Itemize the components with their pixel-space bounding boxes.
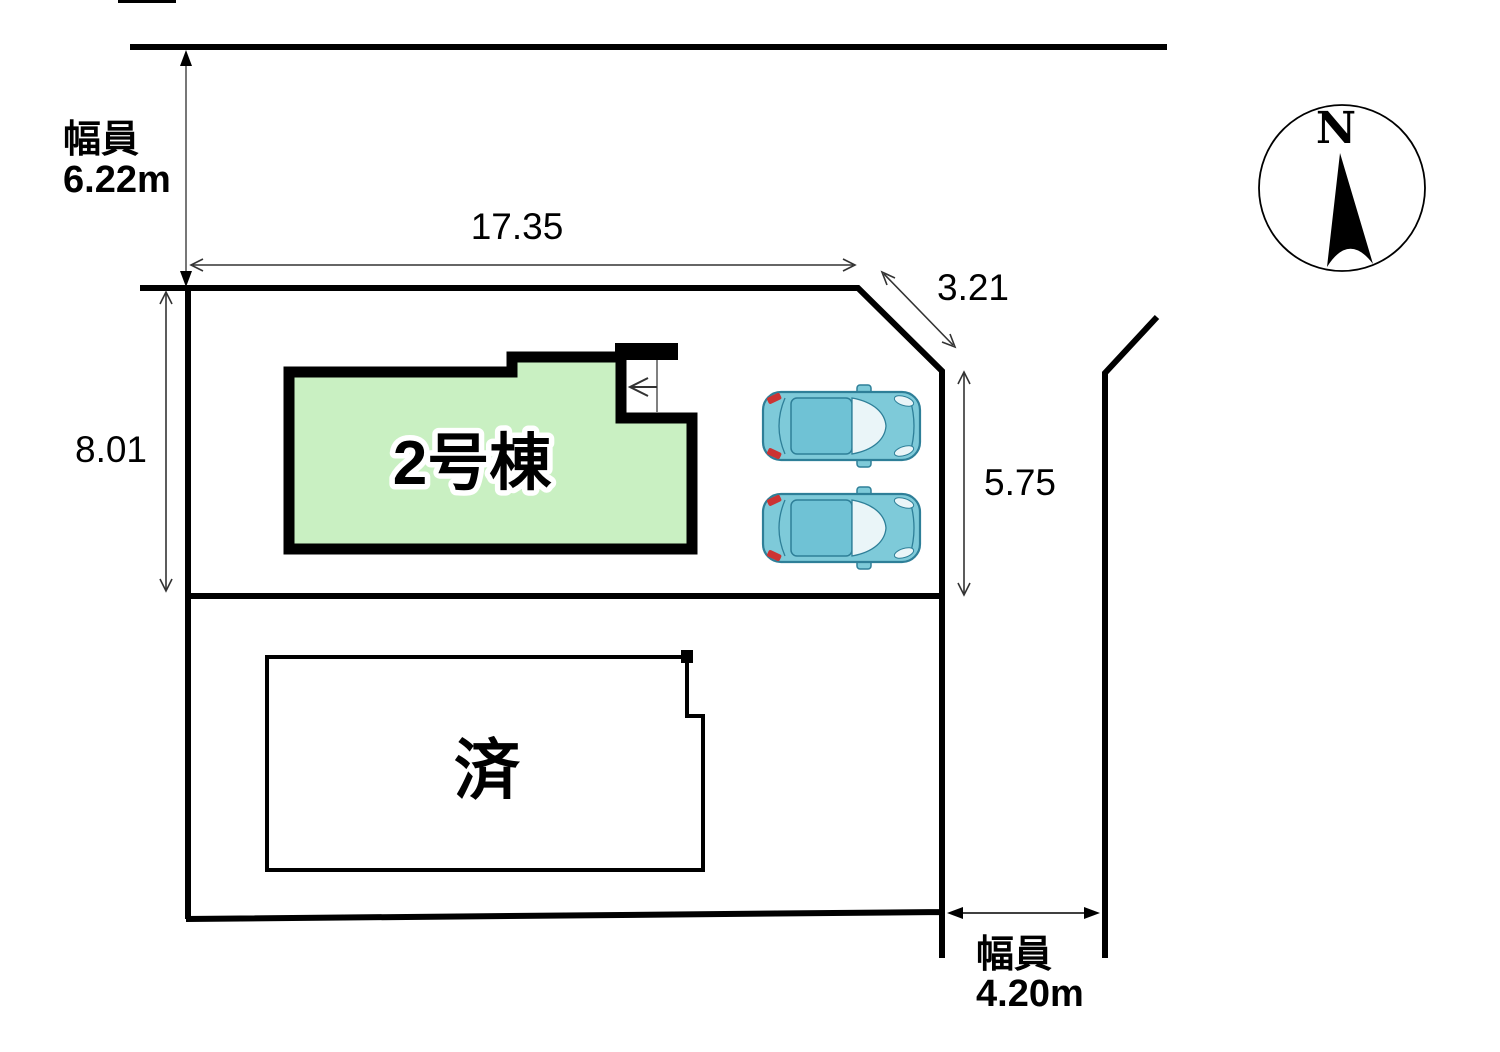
building-sold: 済 <box>267 650 703 870</box>
road-right-width-label-line1: 幅員 <box>976 934 1052 976</box>
road-right-width-label-line2: 4.20m <box>976 973 1084 1015</box>
dimension-frontage-top: 17.35 <box>191 206 855 271</box>
site-plan-canvas: 2号棟 済 幅員 6.22m 17.35 3.21 8.01 <box>0 0 1500 1052</box>
dimension-frontage-top-label: 17.35 <box>471 206 564 247</box>
road-right-line <box>1105 317 1157 958</box>
dimension-road-right-width: 幅員 4.20m <box>947 907 1100 1015</box>
car-icon <box>763 385 920 467</box>
building-sold-label: 済 <box>454 733 521 807</box>
dimension-depth-left-label: 8.01 <box>75 429 147 470</box>
dimension-depth-left: 8.01 <box>75 292 172 591</box>
north-compass: N <box>1259 103 1425 271</box>
building-unit2-label: 2号棟 <box>393 429 552 498</box>
dimension-depth-right: 5.75 <box>958 372 1056 595</box>
entrance-arrow-icon <box>630 378 657 396</box>
car-icon <box>763 487 920 569</box>
road-top-width-label-line2: 6.22m <box>63 159 171 201</box>
entrance-porch <box>615 343 678 360</box>
road-top-edge-sliver <box>118 0 176 3</box>
dimension-corner-cut: 3.21 <box>882 267 1009 347</box>
dimension-depth-right-label: 5.75 <box>984 462 1056 503</box>
dimension-corner-cut-label: 3.21 <box>937 267 1009 308</box>
dimension-road-top-width: 幅員 6.22m <box>63 50 192 287</box>
building-unit2: 2号棟 <box>289 343 692 549</box>
compass-n-label: N <box>1316 103 1356 154</box>
building-sold-corner-mark <box>681 650 693 663</box>
road-top-width-label-line1: 幅員 <box>63 119 139 161</box>
